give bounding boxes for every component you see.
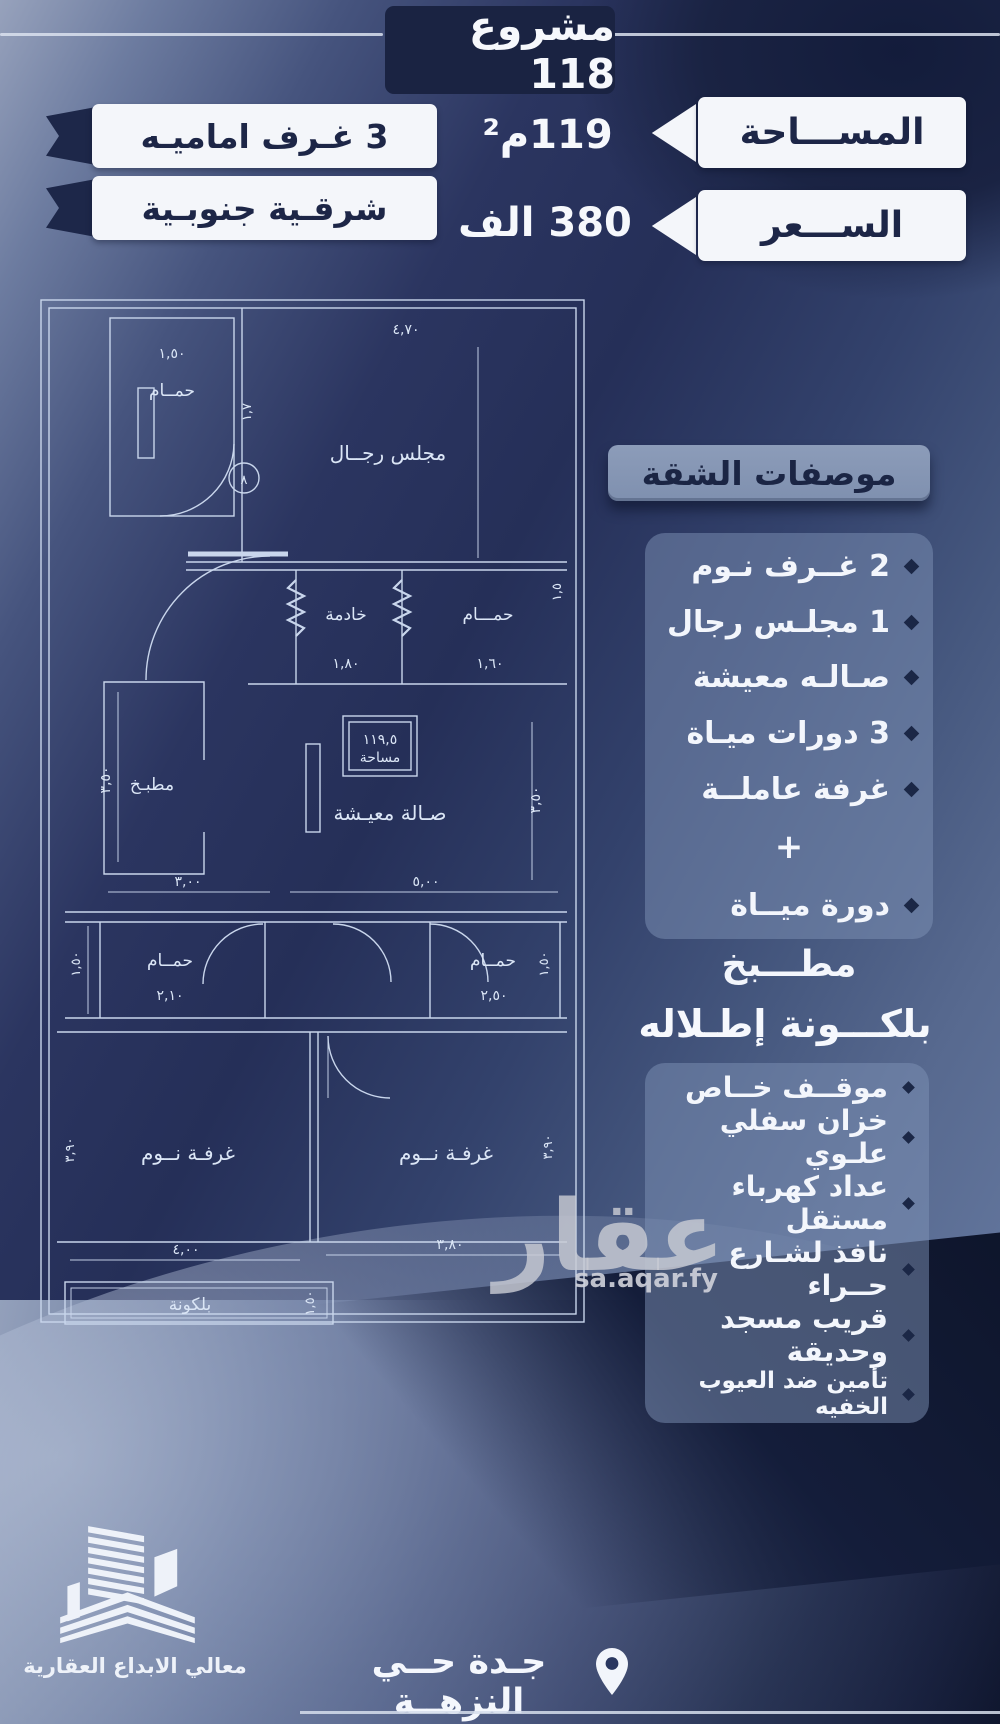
room-label-bed-left: غرفـة نــوم [141, 1141, 235, 1165]
spec-item-label: 3 دورات ميـاة [686, 716, 890, 751]
area-box-value: ١١٩,٥ [363, 732, 398, 748]
location-text: جـدة حــي النزهــة [330, 1642, 588, 1722]
header-divider-left [0, 33, 383, 36]
spec-item-label: قريب مسجد وحديقة [645, 1302, 888, 1368]
spec-item: 1 مجلـس رجال [645, 605, 933, 640]
dim-bath-mid-height: ١,٥ [550, 583, 565, 601]
dim-bath-ll-height: ١,٥٠ [69, 951, 84, 976]
dim-bed-left-width: ٤,٠٠ [172, 1242, 199, 1258]
room-label-bath-low-left: حمــام [147, 951, 193, 971]
spec-item: قريب مسجد وحديقة [645, 1302, 929, 1368]
bullet-icon [902, 1197, 915, 1210]
spec-item-plus: + [645, 827, 933, 867]
spec-item-label: صـالـه معيشة [693, 660, 890, 695]
bullet-icon [902, 1329, 915, 1342]
dim-balcony-height: ١,٥٠ [303, 1290, 318, 1315]
floorplan: ١,٥٠ حمــام ١,٧ ٤,٧٠ مجلس رجــال ٨ خادمة… [38, 292, 587, 1330]
bullet-icon [902, 1388, 915, 1401]
dim-living-width: ٥,٠٠ [412, 874, 439, 890]
poster-page: مشروع 118 3 غـرف اماميـه شرقـية جنوبـية … [0, 0, 1000, 1724]
room-label-maid: خادمة [325, 605, 366, 625]
bullet-icon [902, 1131, 915, 1144]
room-label-majlis: مجلس رجــال [330, 441, 446, 465]
dim-bed-left-height: ٣,٩٠ [63, 1137, 78, 1162]
area-box-label: مساحة [360, 750, 400, 766]
floorplan-labels: ١,٥٠ حمــام ١,٧ ٤,٧٠ مجلس رجــال ٨ خادمة… [63, 322, 565, 1316]
specs-panel-1: 2 غــرف نـوم 1 مجلـس رجال صـالـه معيشة 3… [645, 533, 933, 939]
spec-item-label: تأمين ضد العيوب الخفيه [645, 1368, 888, 1420]
badge-ribbon-icon [46, 107, 96, 165]
spec-item-label: 2 غــرف نـوم [691, 549, 890, 584]
dim-bath-mid-width: ١,٦٠ [476, 656, 503, 672]
footer-divider [300, 1711, 1000, 1714]
room-label-bath-low-right: حمــام [470, 951, 516, 971]
room-label-kitchen: مطبـخ [130, 775, 174, 795]
kitchen-note: مطـــبخ [645, 944, 933, 985]
dim-majlis-width: ٤,٧٠ [392, 322, 419, 338]
spec-item-label: 1 مجلـس رجال [667, 605, 890, 640]
dim-bath-lr-height: ١,٥٠ [537, 951, 552, 976]
stat-label-area: المســـاحة [698, 97, 966, 168]
location-pin-icon [596, 1648, 628, 1694]
spec-item: خزان سفلي علـوي [645, 1104, 929, 1170]
spec-item: تأمين ضد العيوب الخفيه [645, 1368, 929, 1420]
dim-bath-ll-width: ٢,١٠ [156, 988, 183, 1004]
stat-value-area: 119م² [455, 112, 640, 158]
dim-bath-top-height: ١,٧ [240, 403, 255, 421]
badge-orientation: شرقـية جنوبـية [92, 176, 437, 240]
header-divider-right [613, 33, 1000, 36]
balcony-note: بلكـــونة إطـلاله [630, 1002, 940, 1046]
dim-bath-lr-width: ٢,٥٠ [480, 988, 507, 1004]
spec-item: 2 غــرف نـوم [645, 549, 933, 584]
project-title: مشروع 118 [385, 6, 615, 94]
company-logo-icon [55, 1522, 200, 1650]
badge-front-rooms: 3 غـرف اماميـه [92, 104, 437, 168]
bullet-icon [904, 726, 920, 742]
dim-kitchen-height: ٣,٥٠ [98, 766, 114, 793]
spec-item-label: غرفة عاملــة [701, 772, 890, 807]
stat-value-price: 380 الف [445, 200, 645, 246]
room-label-bed-right: غرفـة نــوم [399, 1141, 493, 1165]
dim-kitchen-width: ٣,٠٠ [174, 874, 201, 890]
bullet-icon [902, 1081, 915, 1094]
company-name: معالي الابداع العقارية [20, 1654, 250, 1678]
bullet-icon [904, 559, 920, 575]
watermark-site: sa.aqar.fy [566, 1264, 726, 1294]
dim-bath-top-width: ١,٥٠ [158, 346, 185, 362]
spec-item-label: موقــف خــاص [685, 1071, 888, 1104]
spec-item-label: + [775, 827, 804, 867]
room-label-bath-mid: حمـــام [463, 605, 514, 625]
room-label-balcony: بلكونة [169, 1295, 211, 1315]
bullet-icon [904, 898, 920, 914]
spec-item-label: خزان سفلي علـوي [645, 1104, 888, 1170]
symbol-meter: ٨ [241, 473, 248, 488]
spec-item: موقــف خــاص [645, 1071, 929, 1104]
bullet-icon [904, 670, 920, 686]
spec-item: دورة ميــاة [645, 888, 933, 923]
spec-item-label: دورة ميــاة [730, 888, 890, 923]
bullet-icon [904, 614, 920, 630]
pin-icon [596, 1648, 628, 1695]
room-label-bath-top: حمــام [149, 381, 195, 401]
bullet-icon [902, 1263, 915, 1276]
floorplan-walls [41, 300, 584, 1324]
dim-maid-width: ١,٨٠ [332, 656, 359, 672]
spec-item: 3 دورات ميـاة [645, 716, 933, 751]
bullet-icon [904, 781, 920, 797]
room-label-living: صـالة معيـشة [334, 801, 447, 825]
badge-ribbon-icon [46, 179, 96, 237]
spec-item: صـالـه معيشة [645, 660, 933, 695]
spec-item: غرفة عاملــة [645, 772, 933, 807]
buildings-icon [55, 1522, 200, 1646]
dim-bed-right-height: ٣,٩٠ [541, 1134, 556, 1159]
stat-label-price: الســـعر [698, 190, 966, 261]
specs-title: موصفات الشقة [608, 445, 930, 501]
dim-living-height: ٣,٥٠ [528, 786, 544, 813]
floorplan-svg: ١,٥٠ حمــام ١,٧ ٤,٧٠ مجلس رجــال ٨ خادمة… [38, 292, 587, 1330]
dim-bed-right-width: ٣,٨٠ [436, 1237, 463, 1253]
